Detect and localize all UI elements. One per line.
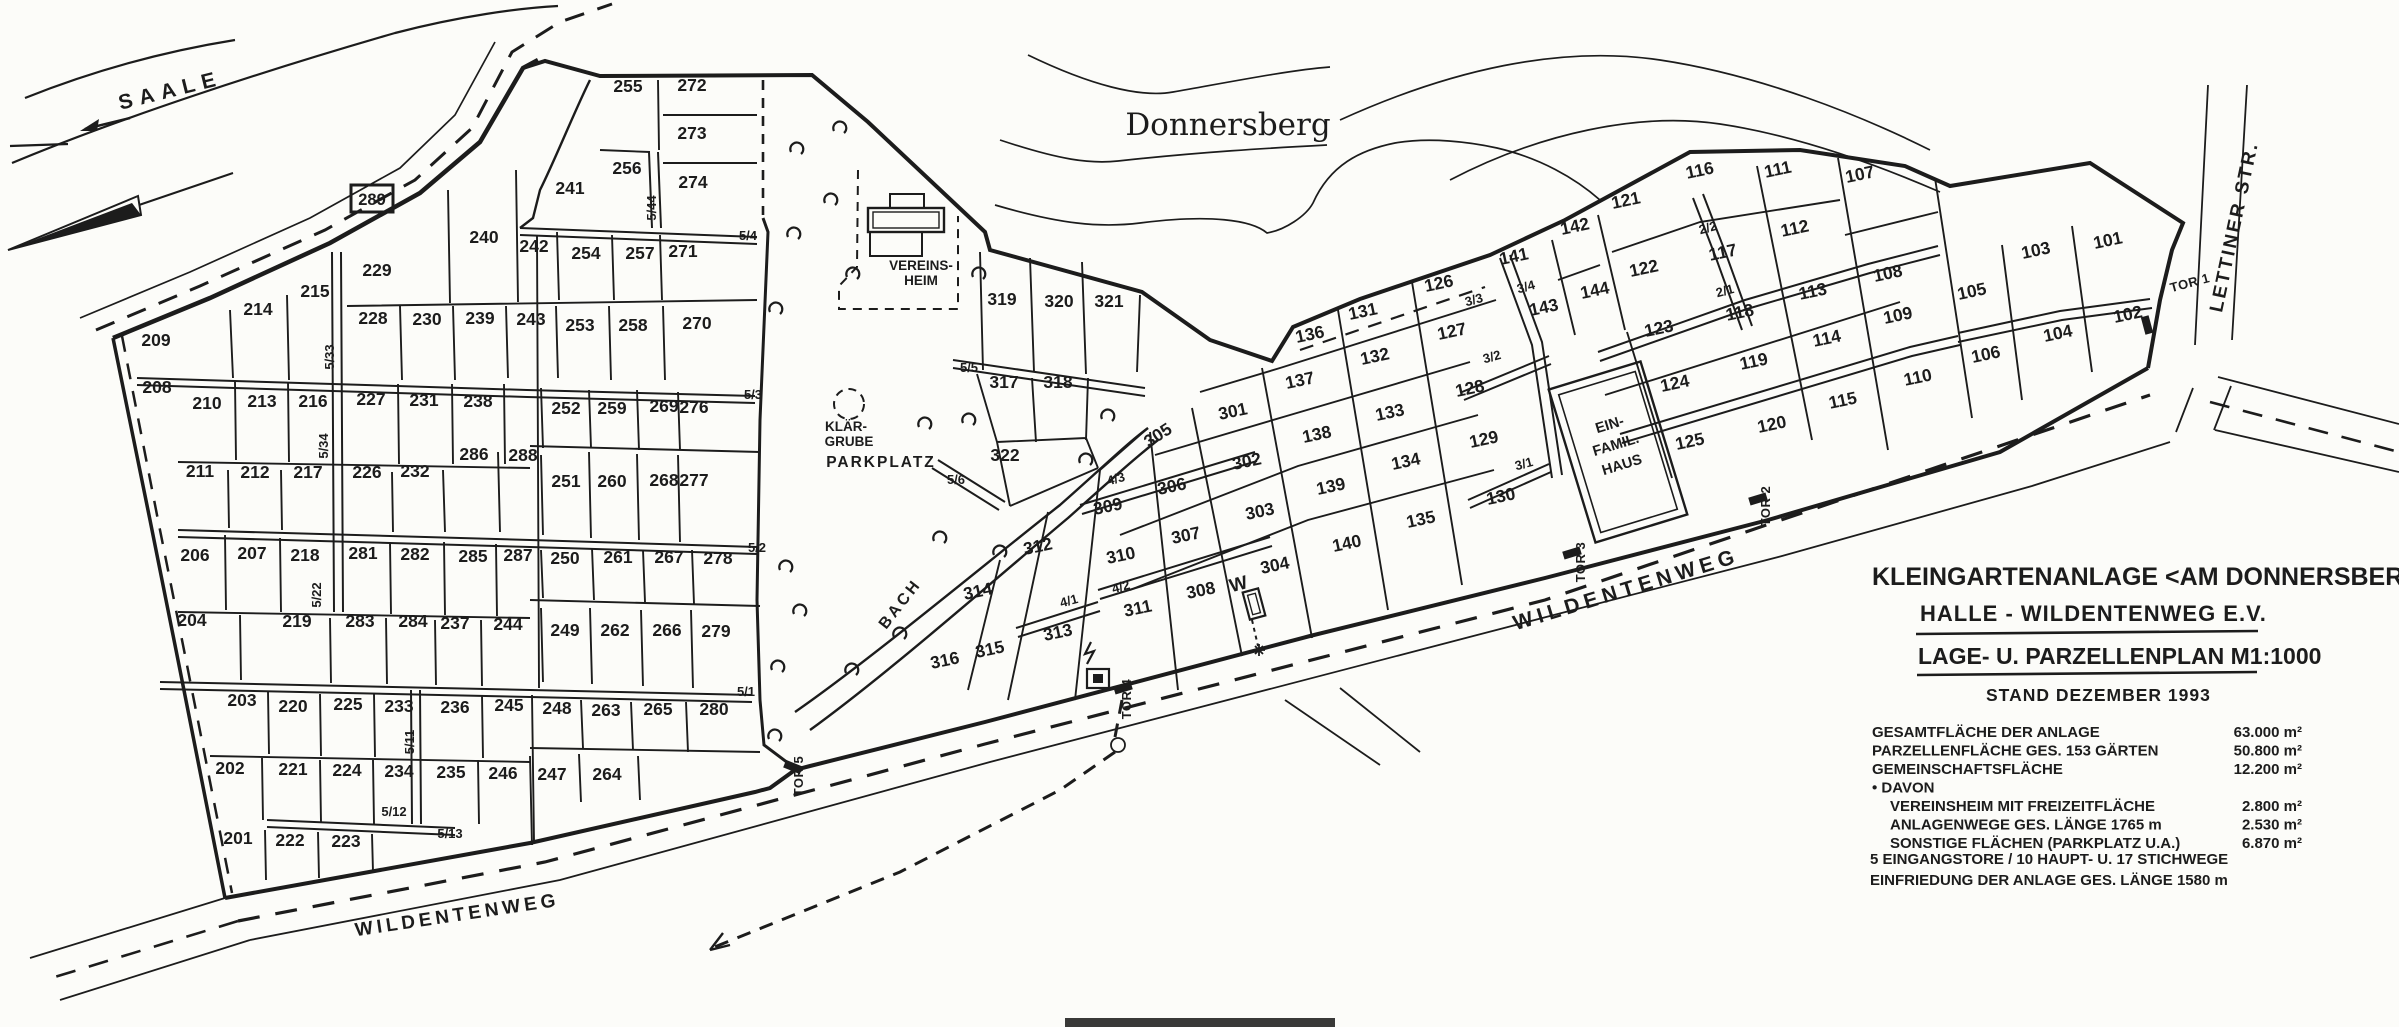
plot-number: 279 [701,621,730,641]
plot-number: 264 [592,764,621,784]
plot-number: 216 [298,391,327,411]
plot-number: 207 [237,543,266,563]
legend-stat-label: GESAMTFLÄCHE DER ANLAGE [1872,724,2100,741]
plot-number: 320 [1044,291,1073,311]
plot-number: 256 [612,158,641,178]
plot-number: 237 [440,613,469,633]
legend-stat-value: 2.530 m² [2242,817,2302,834]
plot-number: 238 [463,391,492,411]
legend-stat-label: PARZELLENFLÄCHE GES. 153 GÄRTEN [1872,743,2158,760]
plot-number: 232 [400,461,429,481]
path-label: 5/22 [309,582,324,607]
plot-number: 273 [677,123,706,143]
plot-number: 247 [537,764,566,784]
plot-number: 252 [551,398,580,418]
title-line3: LAGE- U. PARZELLENPLAN M1:1000 [1918,643,2321,669]
plot-number: 265 [643,699,672,719]
plot-number: 270 [682,313,711,333]
klaergrube-label-1: KLÄR- [825,419,867,434]
hill-label: Donnersberg [1125,107,1330,143]
plot-number: 204 [177,610,206,630]
plot-number: 272 [677,75,706,95]
path-label: 5/3 [744,387,762,402]
plot-number: 226 [352,462,381,482]
legend-stat-value: 2.800 m² [2242,798,2302,815]
plot-number: 242 [519,236,548,256]
plot-number: 266 [652,620,681,640]
gate-label: TOR 5 [791,756,806,797]
legend-stat-value: 12.200 m² [2234,761,2302,778]
plot-number: 217 [293,462,322,482]
plot-number: 219 [282,611,311,631]
plot-number: 225 [333,694,362,714]
plot-number: 262 [600,620,629,640]
plot-number: 261 [603,547,632,567]
plot-number: 228 [358,308,387,328]
legend-stat-label: • DAVON [1872,780,1934,797]
plot-number: 263 [591,700,620,720]
plot-number: 281 [348,543,377,563]
scan-artifact [1065,1018,1335,1027]
plot-number: 248 [542,698,571,718]
title-line2: HALLE - WILDENTENWEG E.V. [1920,601,2267,626]
legend-stat-value: 6.870 m² [2242,835,2302,852]
plot-number: 278 [703,548,732,568]
plot-number: 282 [400,544,429,564]
plot-number: 250 [550,548,579,568]
path-label: 5/11 [402,730,417,755]
path-label: 5/33 [322,344,337,369]
plot-number: 203 [227,690,256,710]
path-label: 5/44 [644,195,659,221]
path-label: 5/2 [748,540,766,555]
plot-number: 255 [613,76,642,96]
plot-number: 201 [223,828,252,848]
plot-number: 241 [555,178,584,198]
plot-number: 246 [488,763,517,783]
title-line1: KLEINGARTENANLAGE <AM DONNERSBERG> [1872,563,2399,591]
plot-number: 244 [493,614,522,634]
plot-number: 280 [699,699,728,719]
plot-number: 214 [243,299,272,319]
title-line4: STAND DEZEMBER 1993 [1986,685,2211,705]
plot-number: 210 [192,393,221,413]
plot-number: 218 [290,545,319,565]
vereinsheim-label-2: HEIM [904,273,938,288]
path-label: 5/1 [737,684,755,699]
plot-number: 254 [571,243,600,263]
plot-number: 277 [679,470,708,490]
plot-number: 212 [240,462,269,482]
legend-note-1: 5 EINGANGSTORE / 10 HAUPT- U. 17 STICHWE… [1870,851,2228,868]
plot-number: 239 [465,308,494,328]
gate-label: TOR 4 [1119,678,1134,719]
plot-number: 208 [142,377,171,397]
plot-number: 215 [300,281,329,301]
path-label: 5/34 [316,433,331,459]
plot-number: 274 [678,172,707,192]
plot-number: 229 [362,260,391,280]
plot-number: 257 [625,243,654,263]
path-label: 5/13 [437,826,462,841]
plot-number: 318 [1043,372,1072,392]
path-label: 5/5 [960,360,978,375]
plot-number: 213 [247,391,276,411]
plot-number: 288 [508,445,537,465]
legend-stat-label: SONSTIGE FLÄCHEN (PARKPLATZ U.A.) [1890,835,2180,852]
plot-number: 221 [278,759,307,779]
legend-stat-value: 63.000 m² [2234,724,2302,741]
plot-number: 211 [186,461,214,481]
plot-number: 322 [990,445,1019,465]
plot-number: 285 [458,546,487,566]
plot-number: 240 [469,227,498,247]
plot-number: 233 [384,696,413,716]
gate-label: TOR 3 [1573,542,1588,583]
plot-number: 286 [459,444,488,464]
gate-label: TOR 2 [1758,486,1773,527]
scanned-site-plan: EIN- FAMIL. HAUS 289 209208214215229 [0,0,2399,1027]
plot-number: 276 [679,397,708,417]
plot-number: 235 [436,762,465,782]
plot-number: 206 [180,545,209,565]
plot-number: 317 [989,372,1018,392]
plot-number: 223 [331,831,360,851]
path-label: 5/6 [947,472,965,487]
plot-number: 258 [618,315,647,335]
plot-number: 269 [649,396,678,416]
path-label: 5/12 [381,804,406,819]
legend-stat-label: VEREINSHEIM MIT FREIZEITFLÄCHE [1890,798,2155,815]
legend-stat-label: ANLAGENWEGE GES. LÄNGE 1765 m [1890,817,2162,834]
plan-svg: EIN- FAMIL. HAUS 289 209208214215229 [0,0,2399,1027]
plot-number: 271 [668,241,697,261]
plot-number: 224 [332,760,361,780]
ref-289-label: 289 [358,191,386,209]
plot-number: 243 [516,309,545,329]
plot-number: 231 [409,390,438,410]
plot-number: 222 [275,830,304,850]
plot-number: 321 [1094,291,1123,311]
plot-number: 234 [384,761,413,781]
plot-number: 245 [494,695,523,715]
plot-number: 267 [654,547,683,567]
plot-number: 284 [398,611,427,631]
plot-number: 283 [345,611,374,631]
plot-number: 227 [356,389,385,409]
plot-number: 259 [597,398,626,418]
vereinsheim-label-1: VEREINS- [889,258,953,273]
plot-number: 268 [649,470,678,490]
legend-note-2: EINFRIEDUNG DER ANLAGE GES. LÄNGE 1580 m [1870,872,2228,889]
plot-number: 251 [551,471,580,491]
plot-number: 209 [141,330,170,350]
plot-number: 319 [987,289,1016,309]
plot-number: 260 [597,471,626,491]
parkplatz-label: PARKPLATZ [826,454,936,471]
plot-number: 253 [565,315,594,335]
plot-number: 287 [503,545,532,565]
plot-number: 249 [550,620,579,640]
legend-stat-value: 50.800 m² [2234,743,2302,760]
klaergrube-label-2: GRUBE [825,434,874,449]
legend-stat-label: GEMEINSCHAFTSFLÄCHE [1872,761,2063,778]
plot-number: 220 [278,696,307,716]
plot-number: 230 [412,309,441,329]
plot-number: 236 [440,697,469,717]
path-label: 5/4 [739,228,758,243]
plot-number: 202 [215,758,244,778]
